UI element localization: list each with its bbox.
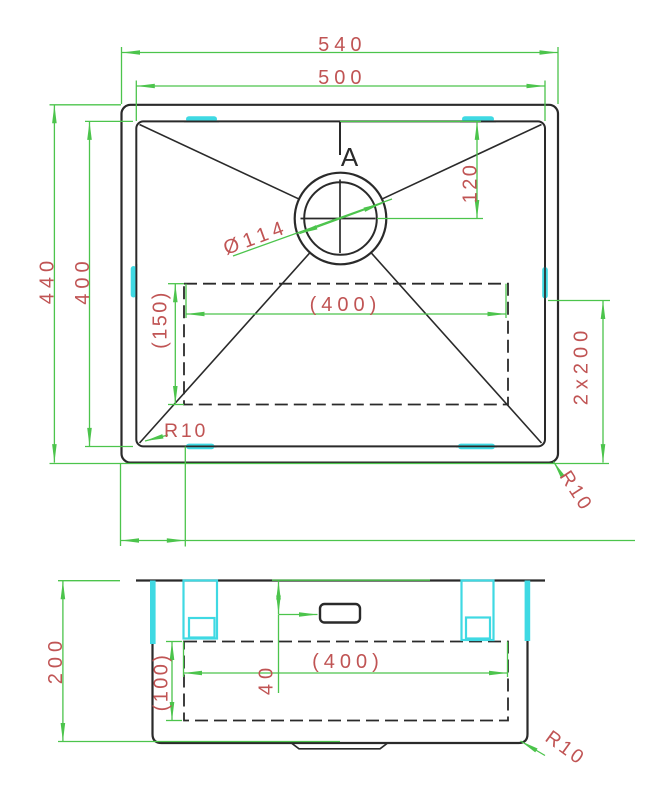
- svg-text:40: 40: [256, 663, 278, 695]
- svg-text:A: A: [341, 142, 359, 172]
- svg-text:500: 500: [318, 67, 366, 89]
- svg-text:(400): (400): [310, 294, 382, 316]
- svg-text:440: 440: [37, 256, 59, 304]
- svg-text:(400): (400): [312, 651, 384, 673]
- svg-text:R10: R10: [164, 420, 208, 442]
- svg-text:400: 400: [72, 256, 94, 304]
- svg-text:540: 540: [318, 34, 366, 56]
- svg-text:2x200: 2x200: [571, 326, 593, 406]
- svg-text:(100): (100): [151, 653, 173, 712]
- svg-text:(150): (150): [150, 290, 172, 349]
- svg-text:120: 120: [460, 163, 482, 204]
- svg-text:200: 200: [45, 636, 67, 684]
